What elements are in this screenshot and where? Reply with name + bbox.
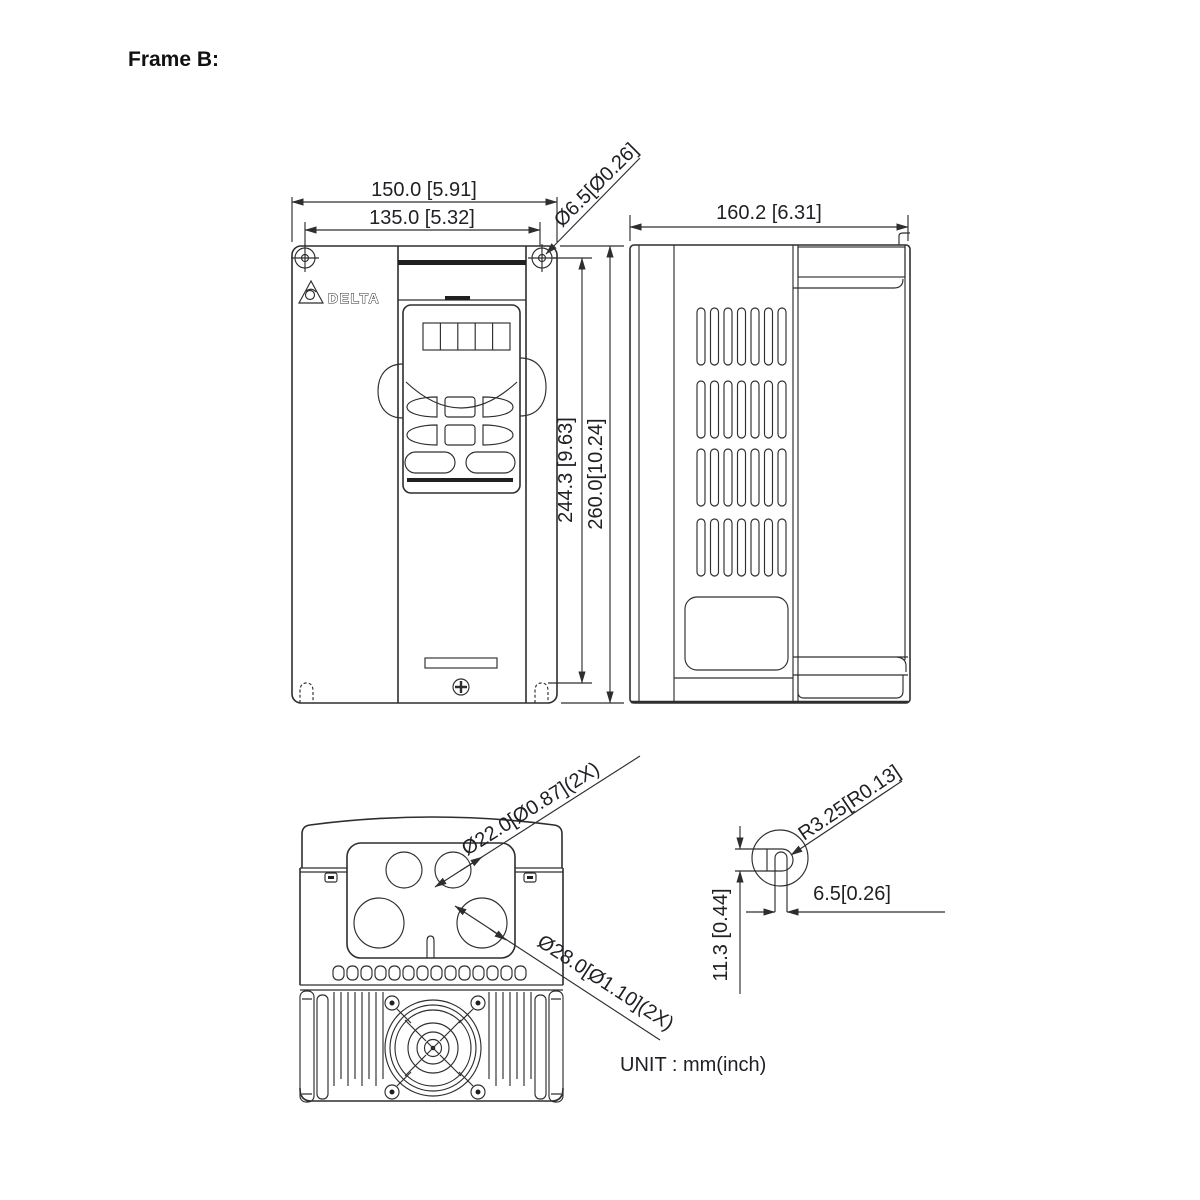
right-arrow-button [483, 397, 513, 417]
detail-circle [752, 830, 808, 886]
side-terminal-cover [685, 597, 788, 670]
bottom-notch-right [535, 683, 548, 703]
fan-screw-bl [385, 1085, 399, 1099]
detail-dimensions: 11.3 [0.44] 6.5[0.26] R3.25[R0.13] [710, 761, 945, 994]
right-arrow-button-2 [483, 425, 513, 445]
side-vent-slots [697, 308, 786, 576]
front-view-dimensions: 150.0 [5.91] 135.0 [5.32] Ø6.5[Ø0.26] 24… [292, 139, 643, 703]
plate-center-slot [427, 936, 434, 958]
conduit-hole-small-1 [386, 852, 422, 888]
stop-button [405, 452, 455, 473]
dim-height-holes: 244.3 [9.63] [555, 417, 577, 523]
fan-screw-br [471, 1085, 485, 1099]
side-back-bracket-top [793, 233, 910, 288]
bottom-view: Ø22.0[Ø0.87](2X) Ø28.0[Ø1.10](2X) [300, 756, 678, 1102]
bottom-vent-hole-row [333, 966, 526, 980]
front-view: DELTA [291, 244, 557, 703]
conduit-hole-large-1 [354, 898, 404, 948]
detail-view: 11.3 [0.44] 6.5[0.26] R3.25[R0.13] [710, 761, 945, 994]
fan-screw-tr [471, 996, 485, 1010]
bottom-view-dimensions: Ø22.0[Ø0.87](2X) Ø28.0[Ø1.10](2X) [435, 756, 678, 1040]
conduit-plate [347, 843, 515, 958]
dimension-drawing-canvas: Frame B: [0, 0, 1200, 1200]
bottom-notch-left [300, 683, 313, 703]
heatsink-fins-right [489, 992, 531, 1086]
bottom-clip-right [524, 873, 536, 882]
dim-conduit-large: Ø28.0[Ø1.10](2X) [533, 931, 677, 1035]
dim-hole-diameter: Ø6.5[Ø0.26] [550, 139, 643, 232]
heatsink-fins-left [334, 992, 383, 1086]
left-arrow-button-2 [407, 425, 437, 445]
dim-width-holes: 135.0 [5.32] [369, 207, 475, 229]
dim-depth-overall: 160.2 [6.31] [716, 202, 822, 224]
cooling-fan [385, 996, 485, 1099]
keypad [378, 305, 546, 493]
bottom-clip-left [325, 873, 337, 882]
dim-height-overall: 260.0[10.24] [585, 418, 607, 529]
side-back-bracket-bottom [793, 657, 908, 698]
front-bottom-slot [425, 658, 497, 668]
keypad-bezel-arc [406, 382, 517, 408]
conduit-hole-small-2 [435, 852, 471, 888]
keyhole-stem [775, 852, 787, 912]
delta-logo: DELTA [299, 281, 380, 306]
fan-screw-tl [385, 996, 399, 1010]
keypad-display [423, 323, 510, 350]
dim-slot-width: 6.5[0.26] [813, 883, 891, 905]
delta-logo-text: DELTA [328, 290, 380, 306]
front-top-band [398, 260, 526, 265]
keypad-right-ear [520, 358, 546, 416]
front-bottom-screw [453, 679, 469, 695]
dim-width-overall: 150.0 [5.91] [371, 179, 477, 201]
dim-slot-depth: 11.3 [0.44] [710, 888, 732, 981]
center-button-2 [445, 425, 475, 445]
left-arrow-button [407, 397, 437, 417]
keypad-bottom-bar [407, 478, 513, 482]
dim-slot-radius: R3.25[R0.13] [794, 761, 904, 845]
unit-note: UNIT : mm(inch) [620, 1054, 766, 1076]
side-view: 160.2 [6.31] [630, 202, 910, 703]
run-button [466, 452, 515, 473]
frame-b-drawing: DELTA 150.0 [5.91] 135.0 [5.32] Ø6.5[Ø0.… [0, 0, 1200, 1200]
keypad-left-ear [378, 364, 403, 418]
dim-conduit-small: Ø22.0[Ø0.87](2X) [458, 758, 604, 860]
